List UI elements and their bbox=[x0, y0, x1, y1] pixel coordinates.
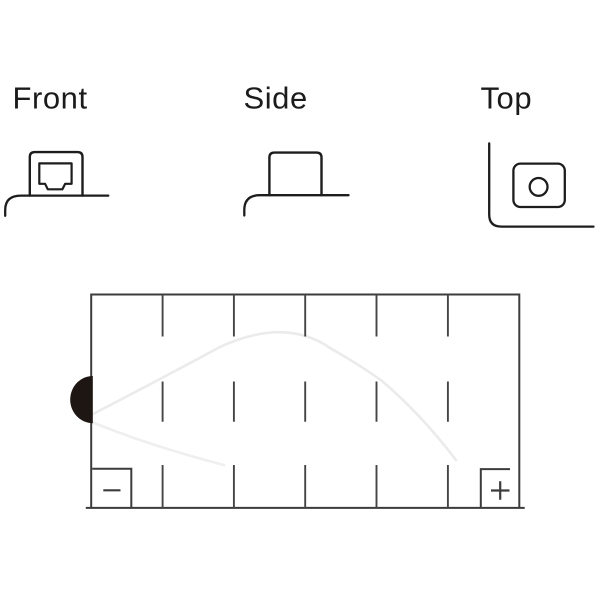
svg-text:Front: Front bbox=[13, 81, 88, 116]
svg-text:Top: Top bbox=[481, 81, 533, 116]
svg-text:Side: Side bbox=[244, 81, 308, 116]
